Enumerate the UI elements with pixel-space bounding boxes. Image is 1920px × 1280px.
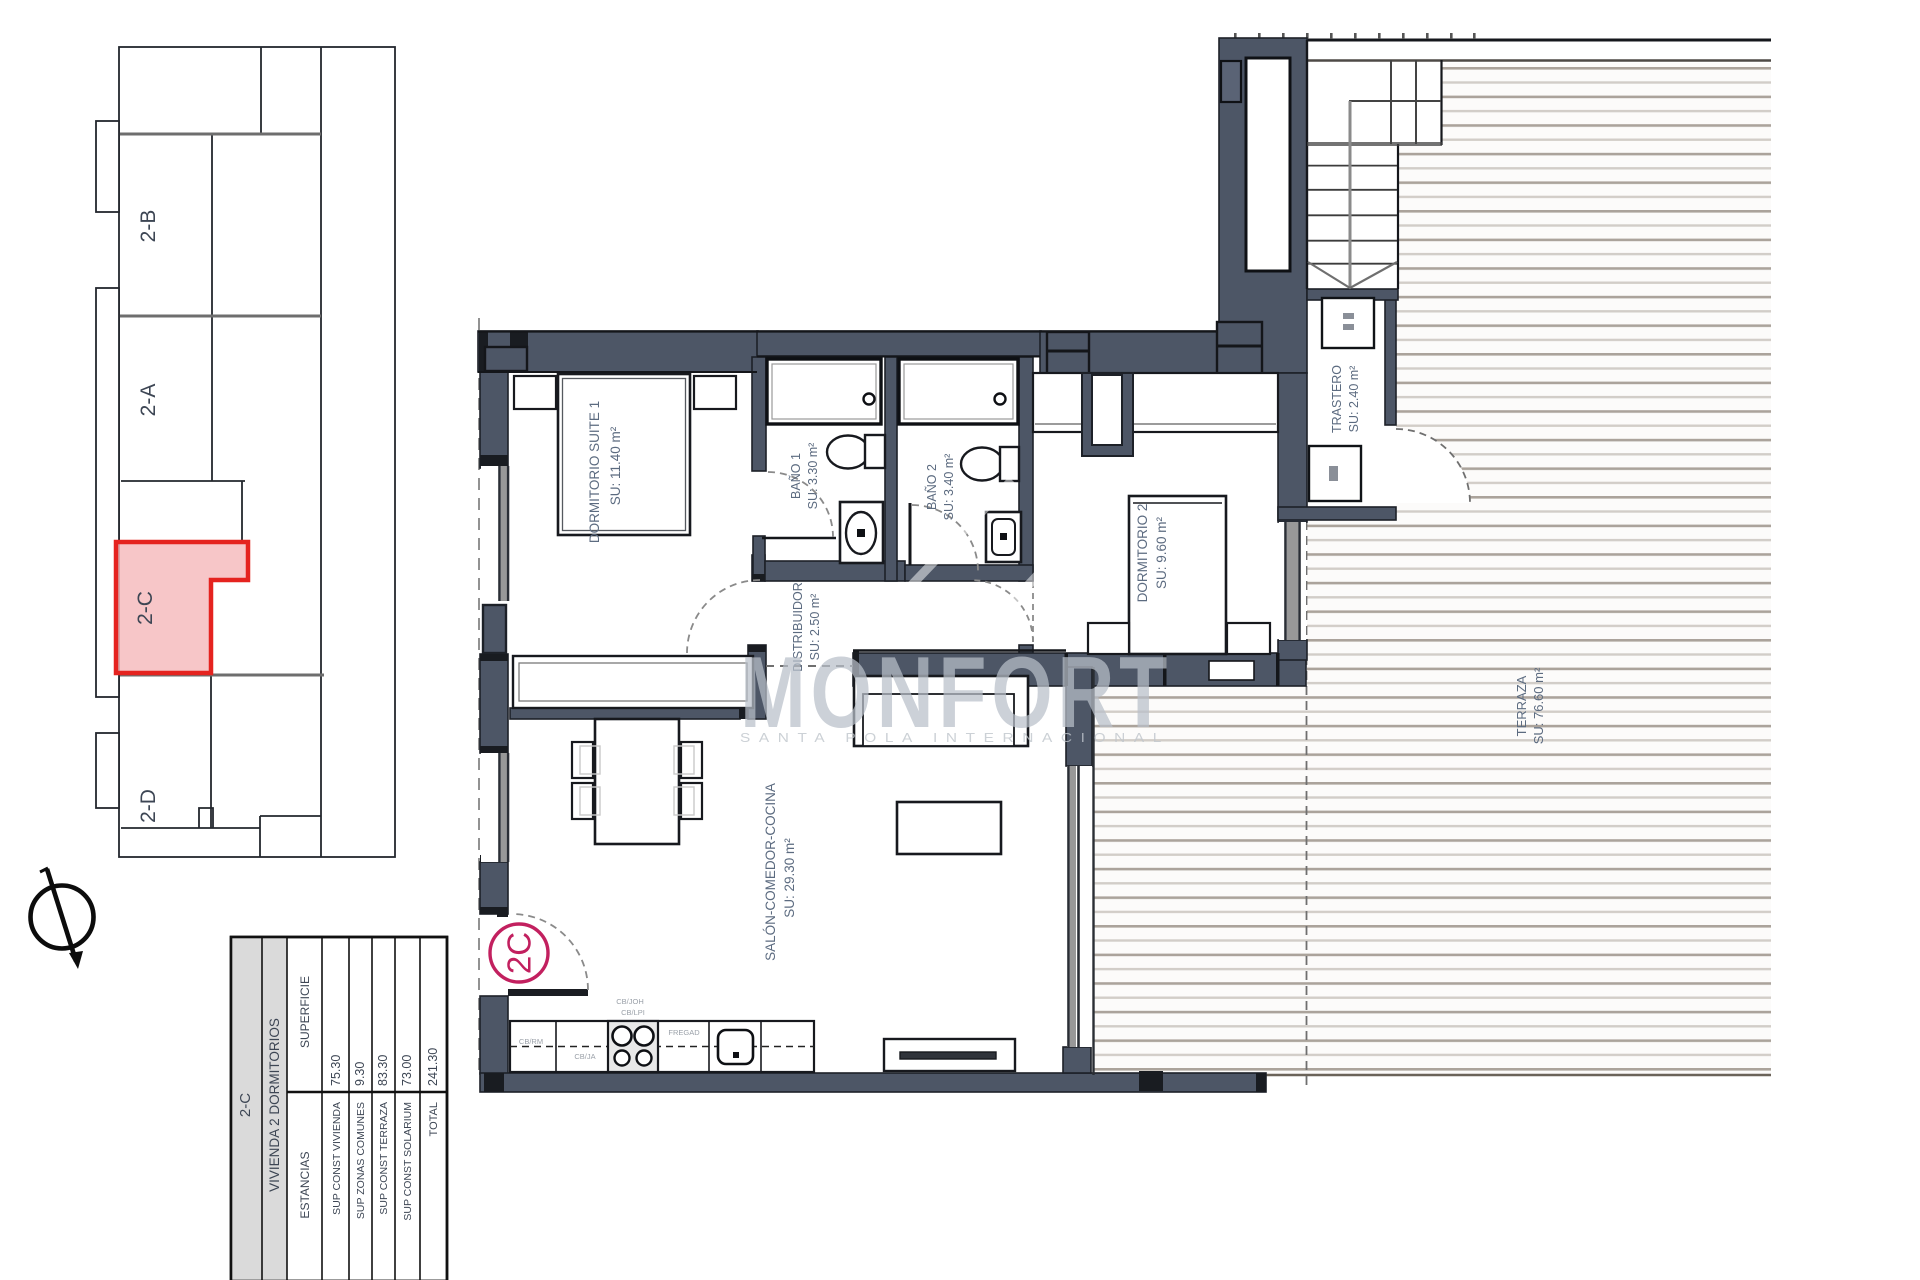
svg-text:SU: 2.40 m²: SU: 2.40 m² xyxy=(1347,366,1361,433)
svg-text:FREGAD: FREGAD xyxy=(668,1028,700,1037)
svg-text:TERRAZA: TERRAZA xyxy=(1514,675,1529,736)
svg-text:CB/RM: CB/RM xyxy=(519,1037,543,1046)
svg-text:2-C: 2-C xyxy=(237,1093,254,1117)
svg-text:SU: 29.30 m²: SU: 29.30 m² xyxy=(782,838,797,918)
svg-text:SU: 3.30 m²: SU: 3.30 m² xyxy=(806,443,820,510)
svg-text:SUP CONST VIVIENDA: SUP CONST VIVIENDA xyxy=(331,1102,343,1215)
svg-text:BAÑO 2: BAÑO 2 xyxy=(925,464,939,510)
svg-text:75.30: 75.30 xyxy=(329,1055,343,1086)
svg-text:9.30: 9.30 xyxy=(353,1062,367,1086)
svg-text:SUP ZONAS COMUNES: SUP ZONAS COMUNES xyxy=(355,1102,367,1219)
svg-text:2-B: 2-B xyxy=(137,210,160,243)
svg-text:SANTA POLA INTERNACIONAL: SANTA POLA INTERNACIONAL xyxy=(740,731,1170,745)
svg-text:CB/JA: CB/JA xyxy=(574,1052,595,1061)
svg-text:SU: 76.60 m²: SU: 76.60 m² xyxy=(1531,667,1546,744)
svg-text:SU: 11.40 m²: SU: 11.40 m² xyxy=(608,426,623,505)
svg-text:SUP CONST SOLARIUM: SUP CONST SOLARIUM xyxy=(402,1102,414,1221)
svg-text:SALÓN-COMEDOR-COCINA: SALÓN-COMEDOR-COCINA xyxy=(763,783,778,961)
svg-text:DORMITORIO 2: DORMITORIO 2 xyxy=(1135,504,1150,603)
svg-text:2-C: 2-C xyxy=(134,591,157,625)
svg-text:VIVIENDA 2 DORMITORIOS: VIVIENDA 2 DORMITORIOS xyxy=(267,1018,282,1192)
svg-text:2-D: 2-D xyxy=(137,789,160,823)
svg-text:2-A: 2-A xyxy=(137,384,160,417)
svg-text:CB/JOH: CB/JOH xyxy=(616,997,644,1006)
svg-text:SU: 9.60 m²: SU: 9.60 m² xyxy=(1154,516,1169,589)
svg-text:SUPERFICIE: SUPERFICIE xyxy=(298,976,312,1048)
svg-text:2C: 2C xyxy=(501,932,538,974)
svg-text:73.00: 73.00 xyxy=(400,1055,414,1086)
svg-text:SUP CONST TERRAZA: SUP CONST TERRAZA xyxy=(378,1102,390,1215)
svg-text:SU: 3.40 m²: SU: 3.40 m² xyxy=(942,454,956,521)
svg-text:BAÑO 1: BAÑO 1 xyxy=(789,453,803,499)
svg-text:TOTAL: TOTAL xyxy=(428,1102,440,1136)
svg-text:CB/LPI: CB/LPI xyxy=(621,1008,645,1017)
svg-text:DORMITORIO SUITE 1: DORMITORIO SUITE 1 xyxy=(587,401,602,543)
svg-text:83.30: 83.30 xyxy=(376,1055,390,1086)
svg-text:241.30: 241.30 xyxy=(426,1048,440,1086)
svg-text:TRASTERO: TRASTERO xyxy=(1330,365,1344,433)
svg-text:ESTANCIAS: ESTANCIAS xyxy=(298,1151,312,1218)
